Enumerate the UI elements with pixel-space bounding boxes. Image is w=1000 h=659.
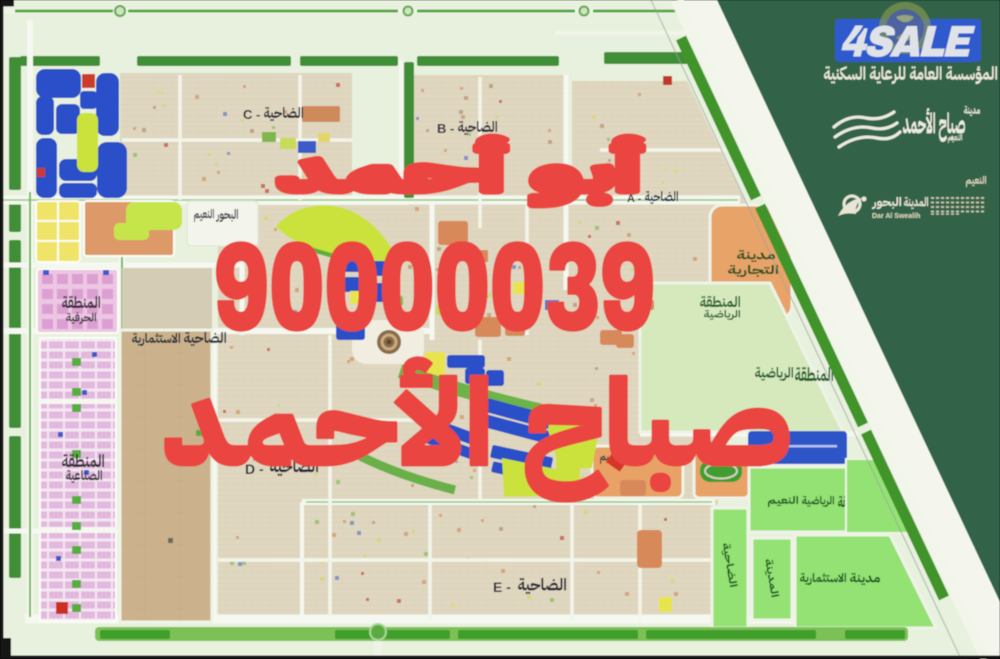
svg-text:C -: C - [243,107,260,122]
svg-text:A -: A - [627,193,642,205]
svg-text:Dar Al Swealih: Dar Al Swealih [872,213,920,220]
svg-text:B -: B - [437,121,454,136]
svg-text:E -: E - [493,579,511,595]
